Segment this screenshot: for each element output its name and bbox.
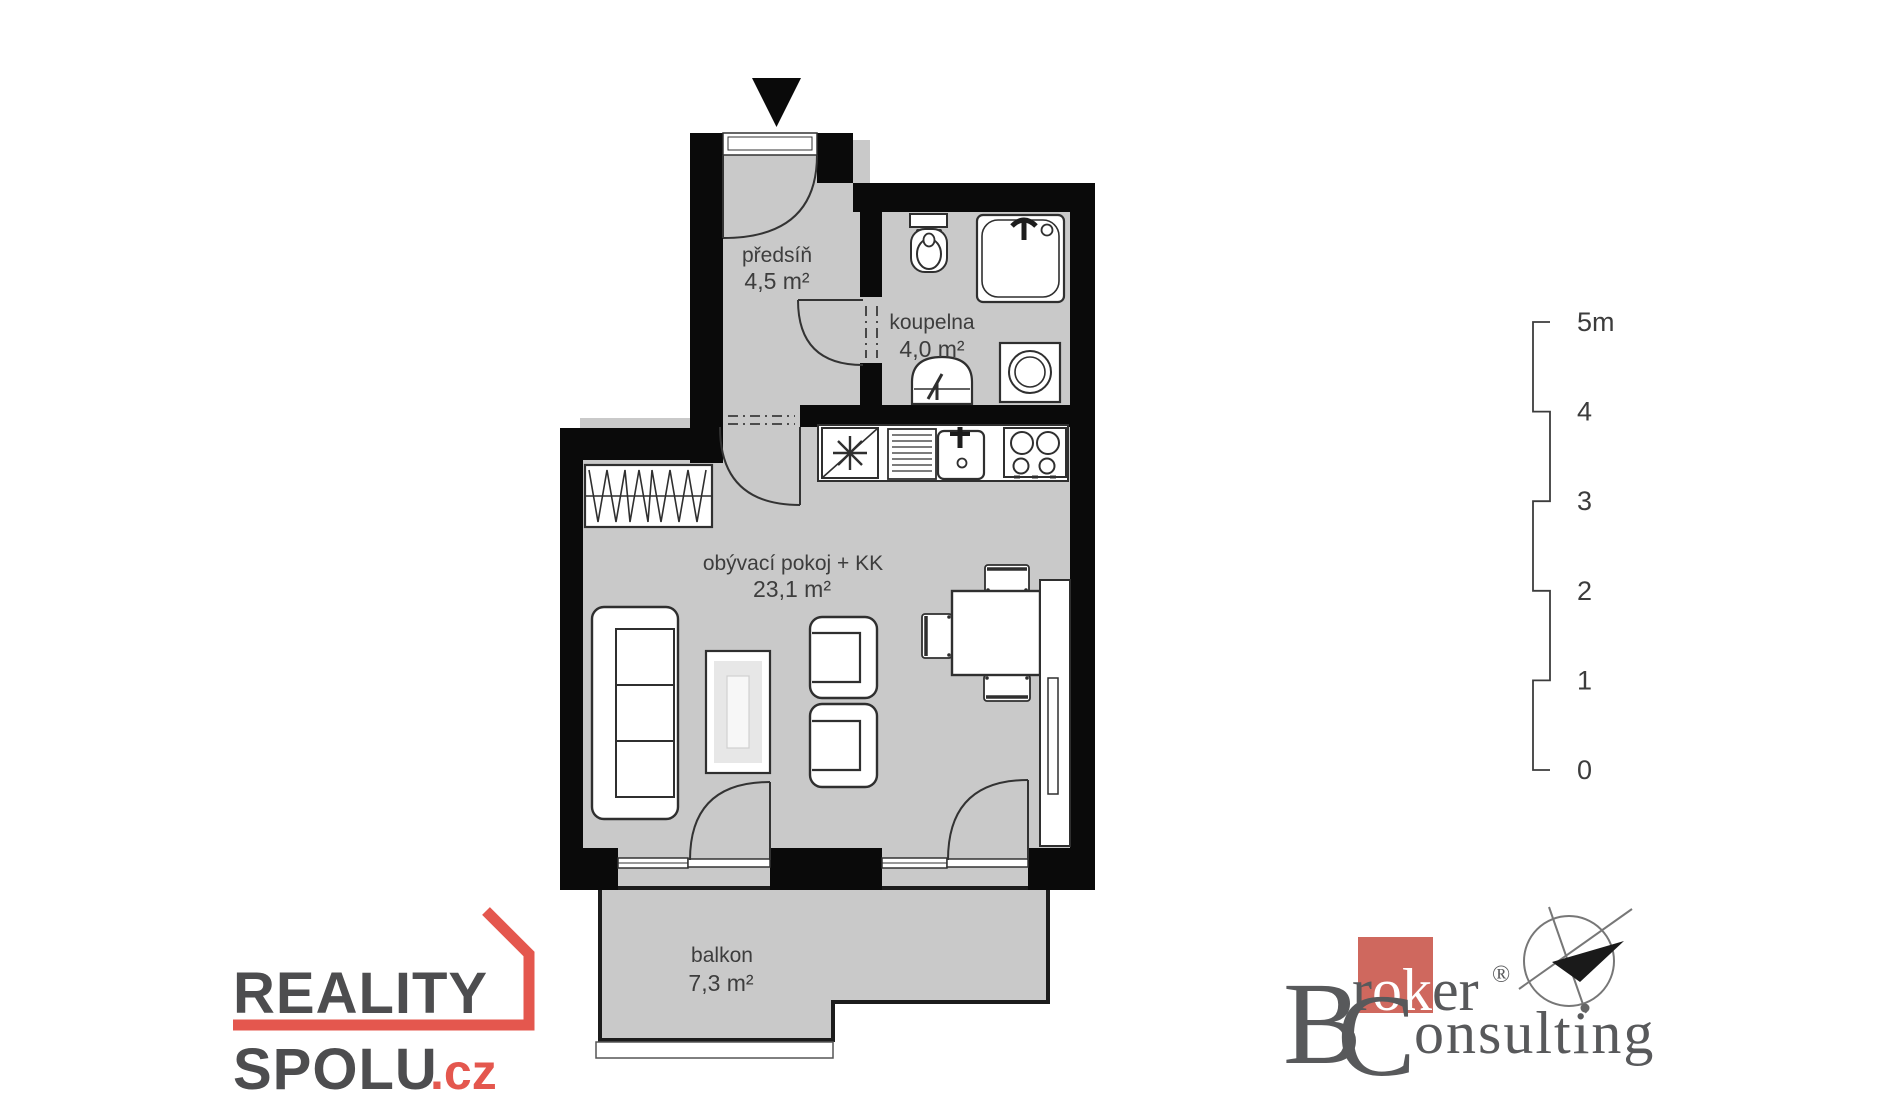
scale-label-2: 2 bbox=[1577, 576, 1592, 606]
wall-bath-left-upper bbox=[860, 183, 882, 297]
sofa-icon bbox=[592, 607, 678, 819]
stove-icon bbox=[1004, 428, 1066, 477]
balcony-floor bbox=[600, 888, 1048, 1040]
reality-logo-line2: SPOLU bbox=[233, 1037, 438, 1102]
living-room-area: 23,1 m² bbox=[753, 576, 831, 602]
toilet-icon bbox=[910, 214, 947, 272]
living-room-label: obývací pokoj + KK bbox=[703, 552, 883, 575]
reality-spolu-logo: REALITY SPOLU .cz bbox=[233, 911, 529, 1102]
wall-predsin-left bbox=[690, 133, 723, 463]
compass-dot bbox=[1581, 1004, 1590, 1013]
balcony-area: 7,3 m² bbox=[688, 970, 754, 996]
armchair-icon-1 bbox=[810, 617, 877, 698]
balcony-door-left-sill bbox=[688, 859, 770, 867]
floor-plan-page: předsíň 4,5 m² koupelna 4,0 m² obývací p… bbox=[0, 0, 1900, 1120]
wall-bottom-1 bbox=[560, 848, 618, 890]
scale-label-4: 4 bbox=[1577, 397, 1592, 427]
floor-plan-svg: předsíň 4,5 m² koupelna 4,0 m² obývací p… bbox=[0, 0, 1900, 1120]
balcony-label: balkon bbox=[691, 944, 753, 967]
wall-bottom-3 bbox=[1028, 848, 1095, 890]
dining-table-icon bbox=[952, 591, 1040, 675]
fridge-star bbox=[833, 436, 867, 470]
wardrobe-icon bbox=[585, 465, 712, 527]
armchair-icon-2 bbox=[810, 704, 877, 787]
scale-bar: 5m 4 3 2 1 0 bbox=[1533, 307, 1615, 785]
balcony-railing bbox=[596, 1042, 833, 1058]
scale-label-0: 0 bbox=[1577, 755, 1592, 785]
compass-icon bbox=[1519, 907, 1632, 1013]
washbasin-icon bbox=[912, 357, 972, 404]
kitchen-sink-icon bbox=[888, 427, 984, 479]
wall-kitchen-back bbox=[800, 405, 1070, 427]
scale-label-3: 3 bbox=[1577, 486, 1592, 516]
koupelna-area: 4,0 m² bbox=[899, 336, 965, 362]
dining-chair-bottom bbox=[984, 675, 1030, 701]
washing-machine-icon bbox=[1000, 343, 1060, 402]
wall-bottom-2 bbox=[770, 848, 882, 890]
dining-chair-left bbox=[922, 614, 952, 658]
coffee-table-icon bbox=[706, 651, 770, 773]
entrance-opening bbox=[723, 133, 817, 155]
predsin-area: 4,5 m² bbox=[744, 268, 810, 294]
wall-right bbox=[1070, 183, 1095, 888]
scale-bar-line bbox=[1533, 322, 1550, 770]
wall-cabinet-icon bbox=[1040, 580, 1070, 846]
wall-left bbox=[560, 428, 583, 888]
bathtub-icon bbox=[977, 215, 1064, 302]
wall-entry-block bbox=[817, 133, 853, 183]
koupelna-label: koupelna bbox=[889, 311, 975, 334]
kitchen bbox=[818, 425, 1068, 481]
reality-logo-tld: .cz bbox=[430, 1044, 497, 1100]
broker-registered-mark: ® bbox=[1492, 962, 1510, 988]
reality-logo-line1: REALITY bbox=[233, 961, 488, 1026]
entrance-arrow-icon bbox=[752, 78, 801, 127]
wall-bath-top bbox=[853, 183, 1095, 212]
fridge-icon bbox=[822, 428, 878, 478]
broker-consulting-logo: B roker ® C onsulting bbox=[1283, 907, 1655, 1101]
consulting-initial-c: C bbox=[1337, 970, 1416, 1101]
scale-label-5m: 5m bbox=[1577, 307, 1615, 337]
predsin-label: předsíň bbox=[742, 244, 812, 267]
consulting-word: onsulting bbox=[1414, 1000, 1655, 1066]
balcony-door-right-sill bbox=[947, 859, 1028, 867]
dining-chair-top bbox=[985, 565, 1029, 593]
scale-label-1: 1 bbox=[1577, 665, 1592, 695]
